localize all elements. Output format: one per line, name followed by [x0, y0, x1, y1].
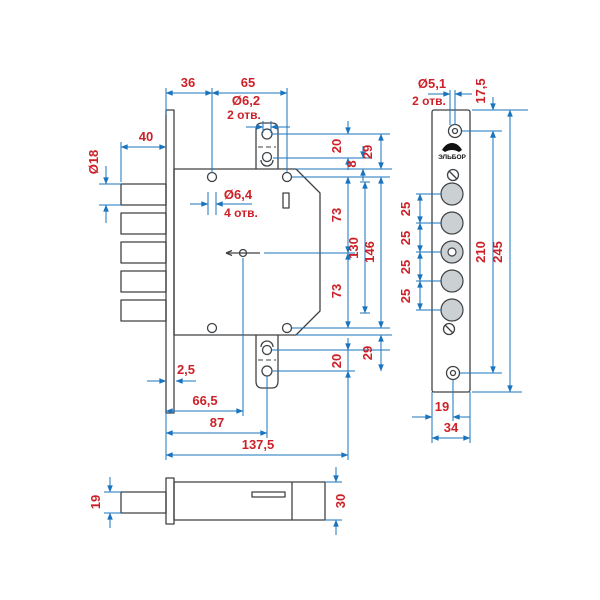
strap-hole [262, 366, 272, 376]
dim-146: 146 [362, 241, 377, 263]
technical-drawing-lock: ЭЛЬБОР [0, 0, 600, 600]
countersunk-hole [449, 125, 462, 138]
fixing-hole [283, 173, 292, 182]
strap-hole [263, 346, 272, 355]
dim-40: 40 [139, 129, 153, 144]
dim-29-top: 29 [360, 145, 375, 159]
bolt-hole-center [448, 248, 456, 256]
dim-19-side: 19 [88, 495, 103, 509]
side-slot [283, 193, 289, 208]
bolt-hole [441, 299, 463, 321]
screw-bottom [444, 324, 455, 335]
dim-dia62-count: 2 отв. [227, 108, 261, 122]
fixing-hole [283, 324, 292, 333]
deadbolt [121, 184, 166, 205]
dim-2-5: 2,5 [177, 362, 195, 377]
dim-73-top: 73 [329, 208, 344, 222]
faceplate-edge [166, 478, 174, 524]
front-view [121, 110, 320, 413]
dim-130: 130 [346, 237, 361, 259]
dim-245: 245 [490, 241, 505, 263]
body-profile [174, 482, 325, 520]
deadbolt [121, 213, 166, 234]
fixing-hole [208, 324, 217, 333]
dim-66-5: 66,5 [192, 393, 217, 408]
dim-34: 34 [444, 420, 459, 435]
dim-210: 210 [473, 241, 488, 263]
dim-20-top: 20 [329, 139, 344, 153]
bolt-hole [441, 212, 463, 234]
dim-87: 87 [210, 415, 224, 430]
dim-65: 65 [241, 75, 255, 90]
deadbolt-profile [121, 492, 166, 513]
logo-elbor: ЭЛЬБОР [438, 143, 466, 161]
drawing-canvas: ЭЛЬБОР [0, 0, 600, 600]
countersunk-hole-center [451, 371, 456, 376]
plate-view: ЭЛЬБОР [432, 110, 470, 392]
side-view [121, 478, 325, 524]
dim-73-bottom: 73 [329, 284, 344, 298]
profile-slot [252, 492, 285, 497]
dim-17-5: 17,5 [473, 78, 488, 103]
dim-19-plate: 19 [435, 399, 449, 414]
dim-dia18: Ø18 [86, 150, 101, 175]
bolt-hole [441, 270, 463, 292]
dim-20-bottom: 20 [329, 354, 344, 368]
logo-text: ЭЛЬБОР [438, 154, 466, 161]
screw-top [448, 170, 459, 181]
bolt-hole [441, 183, 463, 205]
strap-hole [263, 153, 272, 162]
dim-25-1: 25 [398, 202, 413, 216]
faceplate [166, 110, 174, 413]
top-strap [256, 123, 278, 169]
dim-137-5: 137,5 [242, 437, 275, 452]
dim-8: 8 [344, 160, 359, 167]
dim-25-3: 25 [398, 260, 413, 274]
countersunk-hole-center [453, 129, 458, 134]
dim-25-4: 25 [398, 289, 413, 303]
logo-crown [442, 143, 462, 152]
dim-29-bottom: 29 [360, 346, 375, 360]
bolt-holes [441, 183, 463, 321]
fixing-hole [208, 173, 217, 182]
dim-dia62: Ø6,2 [232, 93, 260, 108]
dim-30-side: 30 [333, 494, 348, 508]
deadbolts [121, 184, 166, 321]
deadbolt [121, 300, 166, 321]
dim-dia64: Ø6,4 [224, 187, 253, 202]
dim-dia51: Ø5,1 [418, 76, 446, 91]
dim-25-2: 25 [398, 231, 413, 245]
dim-dia51-count: 2 отв. [412, 94, 446, 108]
keyhole [226, 250, 260, 257]
deadbolt [121, 242, 166, 263]
deadbolt [121, 271, 166, 292]
dim-36: 36 [181, 75, 195, 90]
countersunk-hole [447, 367, 460, 380]
dim-dia64-count: 4 отв. [224, 206, 258, 220]
